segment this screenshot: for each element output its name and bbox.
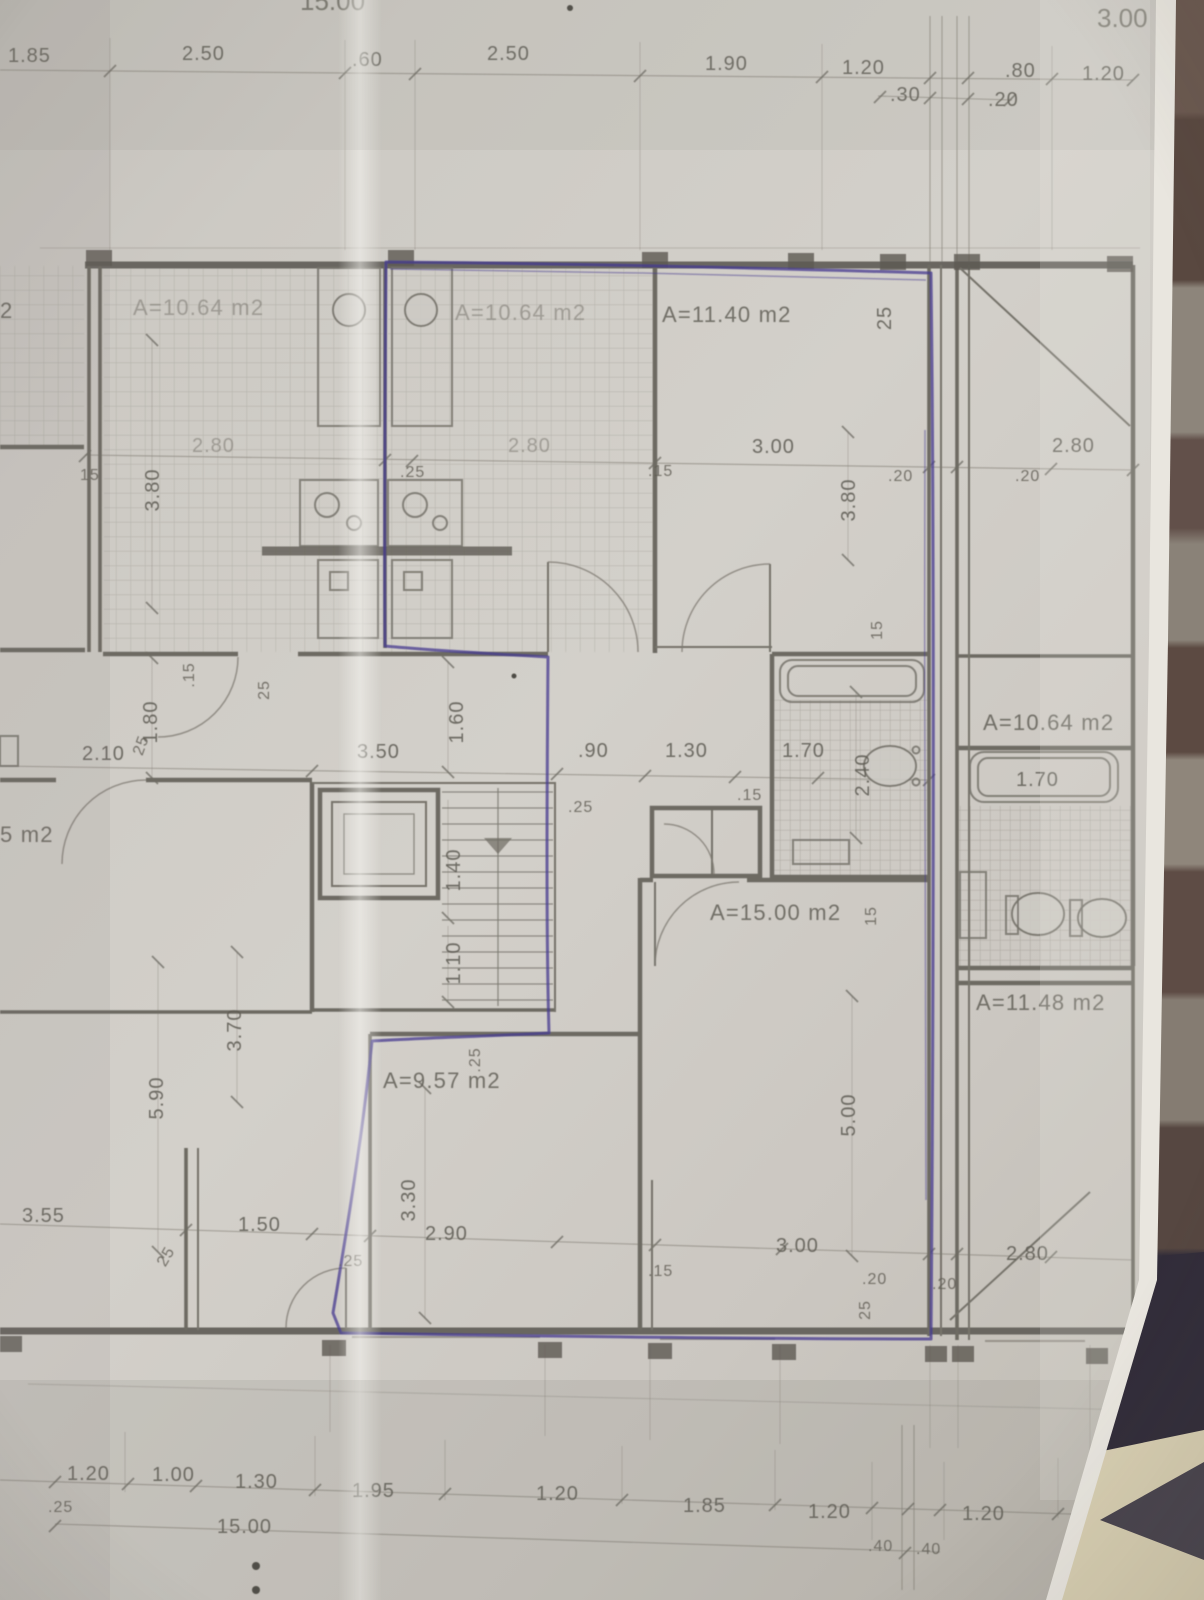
vignette bbox=[0, 0, 1204, 1600]
floor-plan-photo: 15.00 1.85 2.50 .60 2.50 1.90 1.20 .30 .… bbox=[0, 0, 1204, 1600]
photo-of-floor-plan: 15.00 1.85 2.50 .60 2.50 1.90 1.20 .30 .… bbox=[0, 0, 1204, 1600]
